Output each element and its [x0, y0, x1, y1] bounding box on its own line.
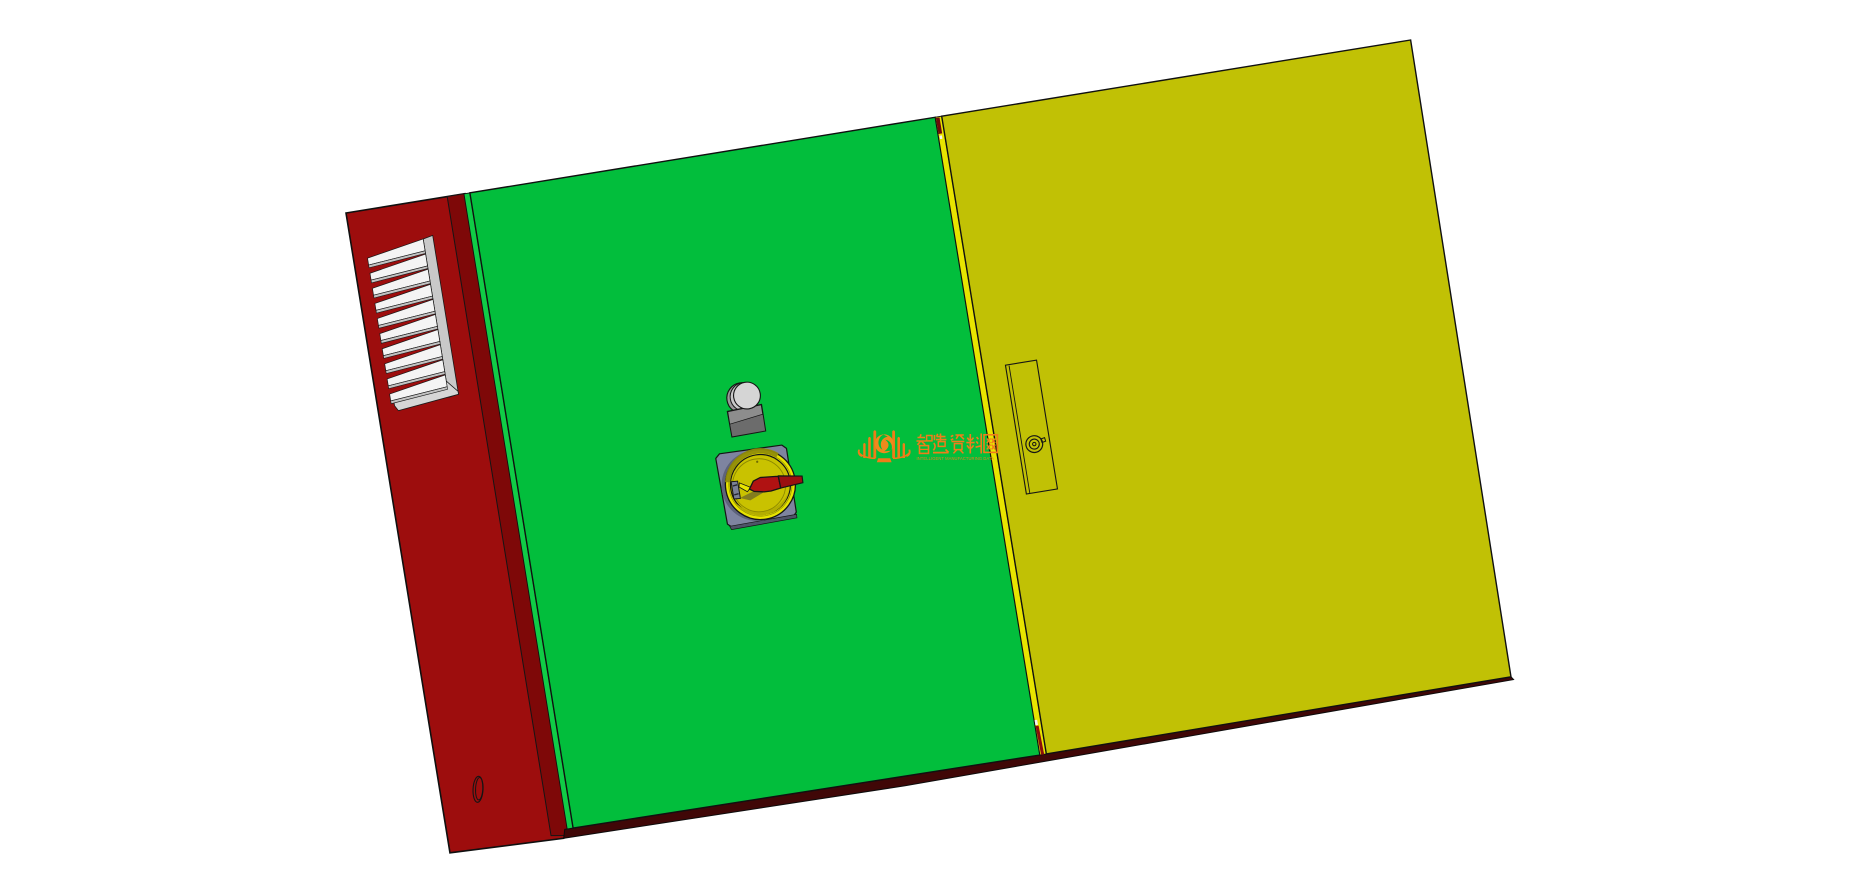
svg-text:INTELLIGENT MANUFACTURING DATA: INTELLIGENT MANUFACTURING DATA [917, 456, 995, 461]
